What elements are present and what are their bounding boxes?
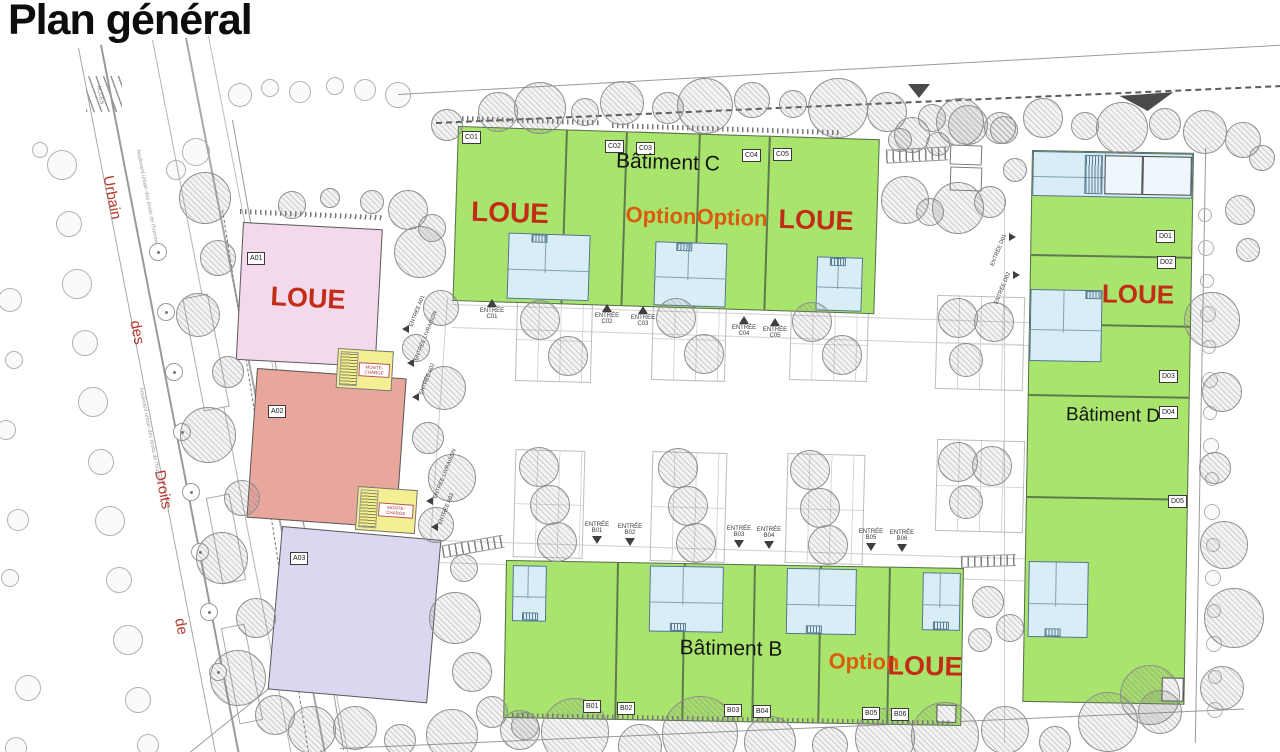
tree (0, 288, 22, 312)
tree (113, 625, 143, 655)
freight-elevator: MONTE-CHARGE (355, 486, 418, 534)
tree (179, 172, 231, 224)
tree (452, 652, 492, 692)
entrance-marker-d02: ENTRÉE D02 (1006, 267, 1020, 281)
tree (384, 724, 416, 752)
tree (182, 483, 200, 501)
building-d-label: Bâtiment D (1032, 404, 1194, 429)
unit-tag-a03: A03 (290, 552, 308, 565)
tree (972, 446, 1012, 486)
tree (926, 132, 950, 156)
office-module (507, 233, 591, 302)
tree (261, 79, 279, 97)
entrance-marker-a03: ENTRÉE A03 (431, 519, 445, 533)
building-b-label: Bâtiment B (631, 635, 831, 662)
office-module (512, 565, 547, 622)
tree (15, 675, 41, 701)
entrance-label: ENTRÉE B05 (856, 529, 886, 542)
freight-elevator-label: MONTE-CHARGE (378, 502, 414, 519)
entrance-marker-b05: ENTRÉE B05 (856, 529, 886, 551)
tree (56, 211, 82, 237)
gate-marker-icon (908, 84, 930, 98)
tree (1202, 372, 1242, 412)
tree (668, 486, 708, 526)
tree (212, 356, 244, 388)
stairs-icon (522, 612, 538, 620)
entrance-marker-a02: ENTRÉE A02 (412, 389, 426, 403)
tree (1200, 274, 1214, 288)
tree (676, 523, 716, 563)
entrance-label: ENTRÉE B03 (724, 526, 754, 539)
loading-dock-hatch (240, 209, 383, 220)
tree (429, 592, 481, 644)
tree (228, 83, 252, 107)
entrance-marker-b06: ENTRÉE B06 (887, 530, 917, 552)
tree (476, 696, 508, 728)
arrow-up-icon (602, 304, 612, 312)
tree (684, 334, 724, 374)
tree (1225, 195, 1255, 225)
unit-tag-b04: B04 (753, 705, 771, 718)
entrance-label: ENTRÉE C01 (477, 308, 507, 321)
bike-rack (961, 554, 1016, 568)
tree (78, 387, 108, 417)
stairs-icon (830, 258, 846, 266)
entrance-marker-d01: ENTRÉE D01 (1002, 229, 1016, 243)
tree (224, 480, 260, 516)
tree (157, 303, 175, 321)
tree (5, 351, 23, 369)
tree (478, 92, 518, 132)
tree (656, 298, 696, 338)
tree (360, 190, 384, 214)
office-module (815, 256, 863, 311)
unit-tag-d02: D02 (1157, 256, 1176, 269)
status-loue-b06: LOUE (875, 650, 976, 683)
waste-room (1104, 155, 1143, 195)
unit-tag-b06: B06 (891, 708, 909, 721)
tree (196, 532, 248, 584)
tree (62, 269, 92, 299)
arrow-right-icon (1013, 271, 1020, 279)
tree (450, 554, 478, 582)
office-module (1028, 561, 1089, 638)
tree (385, 82, 411, 108)
tree (1205, 570, 1221, 586)
arrow-left-icon (412, 393, 419, 401)
stairs-icon (676, 243, 692, 251)
tree (1249, 145, 1275, 171)
tree (180, 407, 236, 463)
tree (548, 336, 588, 376)
unit-divider (1027, 496, 1187, 501)
tree (537, 522, 577, 562)
tree (1, 569, 19, 587)
tree (1204, 504, 1220, 520)
tree (47, 150, 77, 180)
tree (949, 485, 983, 519)
tree (511, 712, 539, 740)
entrance-label: ENTRÉE C02 (592, 313, 622, 326)
arrow-down-icon (897, 544, 907, 552)
tree (1096, 102, 1148, 154)
tree (149, 243, 167, 261)
tree (974, 186, 1006, 218)
tree (182, 138, 210, 166)
tree (1200, 666, 1244, 710)
tree (1149, 108, 1181, 140)
tree (1200, 521, 1248, 569)
entrance-label: ENTRÉE C05 (760, 327, 790, 340)
site-plan: Plan général Urbain des Droits de boulev… (0, 0, 1280, 752)
arrow-down-icon (625, 538, 635, 546)
tree (418, 214, 446, 242)
unit-tag-b03: B03 (724, 704, 742, 717)
office-module (786, 568, 857, 635)
tree (289, 81, 311, 103)
tree (176, 293, 220, 337)
waste-room (1142, 156, 1192, 196)
unit-tag-c01: C01 (462, 131, 481, 144)
tree (1023, 98, 1063, 138)
street-name-word: des (125, 311, 149, 354)
tree (278, 191, 306, 219)
freight-elevator-label: MONTE-CHARGE (358, 362, 390, 378)
tree (618, 724, 662, 752)
tree (5, 737, 27, 752)
tree (990, 116, 1018, 144)
stairs-icon (670, 623, 686, 631)
entrance-marker-livraison: ENTRÉE LIVRAISON (407, 355, 421, 369)
unit-tag-a01: A01 (247, 252, 265, 265)
tree (137, 734, 159, 752)
unit-tag-d01: D01 (1156, 230, 1175, 243)
tree (1198, 208, 1212, 222)
stair-hatch (339, 351, 359, 386)
arrow-up-icon (739, 316, 749, 324)
tree (1184, 292, 1240, 348)
tree (1003, 158, 1027, 182)
arrow-up-icon (770, 318, 780, 326)
tree (1198, 240, 1214, 256)
unit-divider (614, 563, 619, 719)
office-module (653, 241, 727, 307)
arrow-up-icon (638, 306, 648, 314)
status-loue-c-left: LOUE (460, 195, 561, 230)
entrance-label: ENTRÉE B02 (615, 524, 645, 537)
status-loue-c-right: LOUE (766, 203, 867, 237)
entrance-label: ENTRÉE B04 (754, 527, 784, 540)
unit-tag-b05: B05 (862, 707, 880, 720)
tree (210, 650, 266, 706)
tree (106, 567, 132, 593)
arrow-down-icon (764, 541, 774, 549)
unit-tag-c05: C05 (773, 148, 792, 161)
tree (571, 98, 599, 126)
tree (1138, 690, 1182, 734)
tree (354, 79, 376, 101)
tree (519, 447, 559, 487)
unit-divider (886, 568, 891, 724)
arrow-left-icon (431, 523, 438, 531)
entrance-marker-a01: ENTRÉE A01 (402, 321, 416, 335)
arrow-right-icon (1009, 233, 1016, 241)
street-caption: boulevard urbain des droits de l'homme (137, 380, 164, 489)
entrance-marker-b01: ENTRÉE B01 (582, 522, 612, 544)
entrance-marker-c02: ENTRÉE C02 (592, 304, 622, 326)
tree (88, 449, 114, 475)
arrow-down-icon (734, 540, 744, 548)
tree (1183, 110, 1227, 154)
tree (200, 603, 218, 621)
tree (125, 687, 151, 713)
stair-hatch (358, 489, 379, 528)
tree (972, 586, 1004, 618)
stairs-icon (806, 625, 822, 633)
unit-tag-d03: D03 (1159, 370, 1178, 383)
arrow-left-icon (402, 325, 409, 333)
tree (1204, 588, 1264, 648)
tree (822, 335, 862, 375)
tree (514, 82, 566, 134)
status-loue-a01: LOUE (257, 280, 358, 316)
stairs-icon (532, 234, 548, 242)
tree (166, 160, 186, 180)
tree (792, 302, 832, 342)
tree (431, 109, 463, 141)
tree (530, 485, 570, 525)
tree (996, 614, 1024, 642)
tree (165, 363, 183, 381)
entrance-label: ENTRÉE C04 (729, 325, 759, 338)
tree (288, 706, 336, 752)
tree (981, 706, 1029, 752)
tree (808, 525, 848, 565)
stairs-icon (1084, 155, 1103, 194)
arrow-left-icon (426, 497, 433, 505)
entrance-marker-b03: ENTRÉE B03 (724, 526, 754, 548)
tree (779, 90, 807, 118)
entrance-label: ENTRÉE B06 (887, 530, 917, 543)
tree (426, 709, 478, 752)
unit-tag-d05: D05 (1168, 495, 1187, 508)
status-loue-d02: LOUE (1088, 278, 1189, 311)
entrance-label: ENTRÉE C03 (628, 315, 658, 328)
freight-elevator: MONTE-CHARGE (336, 348, 394, 391)
tree (72, 330, 98, 356)
bike-rack (441, 535, 504, 559)
unit-tag-b02: B02 (617, 702, 635, 715)
tree (333, 706, 377, 750)
unit-tag-b01: B01 (583, 700, 601, 713)
tree (800, 488, 840, 528)
page-title: Plan général (8, 0, 252, 45)
tree (968, 628, 992, 652)
tree (326, 77, 344, 95)
tree (1039, 726, 1071, 752)
arrow-down-icon (866, 543, 876, 551)
unit-tag-a02: A02 (268, 405, 286, 418)
tree (1078, 692, 1138, 752)
tree (949, 343, 983, 377)
tree (95, 506, 125, 536)
tree (948, 105, 988, 145)
tree (236, 598, 276, 638)
tree (520, 300, 560, 340)
unit-divider (1029, 394, 1189, 399)
tree (1199, 452, 1231, 484)
entrance-marker-livraison: ENTRÉE LIVRAISON (426, 493, 440, 507)
entrance-marker-b02: ENTRÉE B02 (615, 524, 645, 546)
entrance-label: ENTRÉE B01 (582, 522, 612, 535)
entrance-marker-c05: ENTRÉE C05 (760, 318, 790, 340)
office-module (922, 572, 961, 631)
tree (658, 448, 698, 488)
tree (200, 240, 236, 276)
tree (32, 142, 48, 158)
tree (320, 188, 340, 208)
entrance-marker-c04: ENTRÉE C04 (729, 316, 759, 338)
entrance-marker-c03: ENTRÉE C03 (628, 306, 658, 328)
arrow-down-icon (592, 536, 602, 544)
tree (808, 78, 868, 138)
arrow-up-icon (487, 299, 497, 307)
tree (812, 727, 848, 752)
stairs-icon (933, 621, 949, 629)
entrance-marker-c01: ENTRÉE C01 (477, 299, 507, 321)
office-module (649, 566, 724, 633)
tree (1236, 238, 1260, 262)
tree (7, 509, 29, 531)
tree (0, 420, 16, 440)
tree (412, 422, 444, 454)
entrance-marker-b04: ENTRÉE B04 (754, 527, 784, 549)
tree (600, 81, 644, 125)
utility-shed (950, 144, 983, 165)
arrow-left-icon (407, 359, 414, 367)
tree (790, 450, 830, 490)
tree (1071, 112, 1099, 140)
tree (894, 117, 930, 153)
stairs-icon (1045, 628, 1061, 636)
tree (734, 82, 770, 118)
tree (938, 298, 978, 338)
tree (677, 78, 733, 134)
